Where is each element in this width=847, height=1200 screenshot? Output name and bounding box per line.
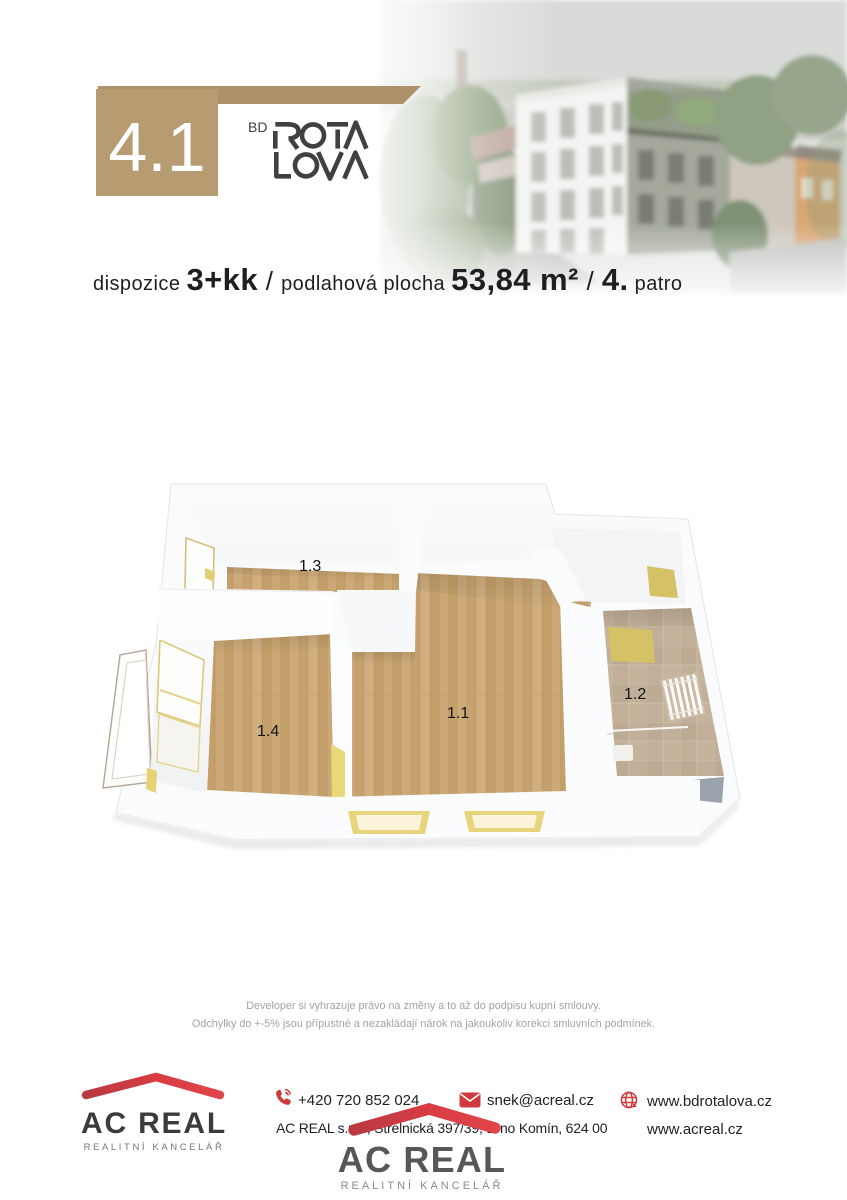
svg-text:1.4: 1.4	[257, 723, 279, 740]
svg-text:REALITNÍ KANCELÁŘ: REALITNÍ KANCELÁŘ	[84, 1142, 225, 1153]
svg-text:AC REAL: AC REAL	[338, 1139, 506, 1180]
svg-text:1.1: 1.1	[447, 705, 469, 722]
svg-text:REALITNÍ KANCELÁŘ: REALITNÍ KANCELÁŘ	[341, 1179, 504, 1192]
svg-text:AC REAL: AC REAL	[81, 1107, 227, 1140]
svg-text:1.2: 1.2	[624, 686, 646, 703]
svg-text:1.3: 1.3	[299, 558, 321, 575]
